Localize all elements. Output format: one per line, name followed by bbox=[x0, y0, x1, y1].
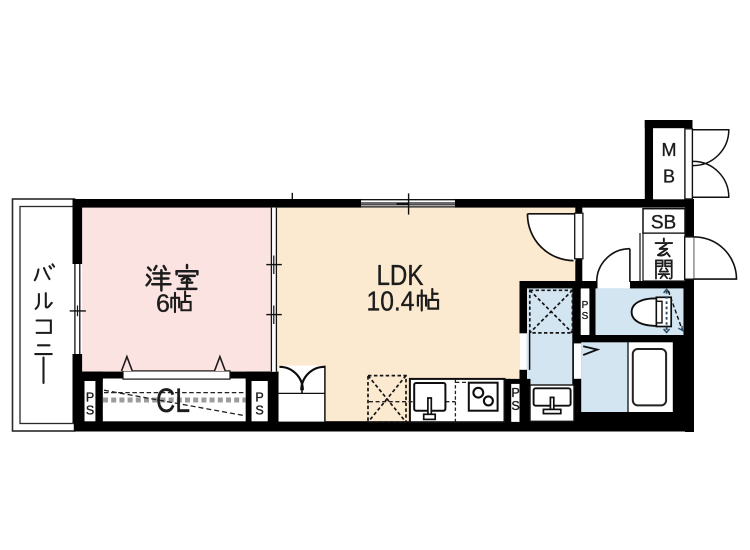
svg-text:S: S bbox=[582, 311, 589, 322]
svg-text:10.4: 10.4 bbox=[367, 286, 415, 317]
svg-text:P: P bbox=[582, 300, 589, 311]
svg-text:M: M bbox=[662, 140, 677, 160]
svg-text:P: P bbox=[255, 391, 263, 405]
svg-text:6: 6 bbox=[156, 290, 170, 318]
svg-text:P: P bbox=[86, 391, 94, 405]
svg-text:CL: CL bbox=[156, 382, 190, 420]
svg-text:S: S bbox=[86, 404, 94, 418]
svg-text:P: P bbox=[511, 386, 519, 400]
svg-text:SB: SB bbox=[651, 213, 676, 234]
svg-text:B: B bbox=[663, 167, 675, 187]
svg-text:S: S bbox=[511, 399, 519, 413]
svg-text:S: S bbox=[255, 404, 263, 418]
